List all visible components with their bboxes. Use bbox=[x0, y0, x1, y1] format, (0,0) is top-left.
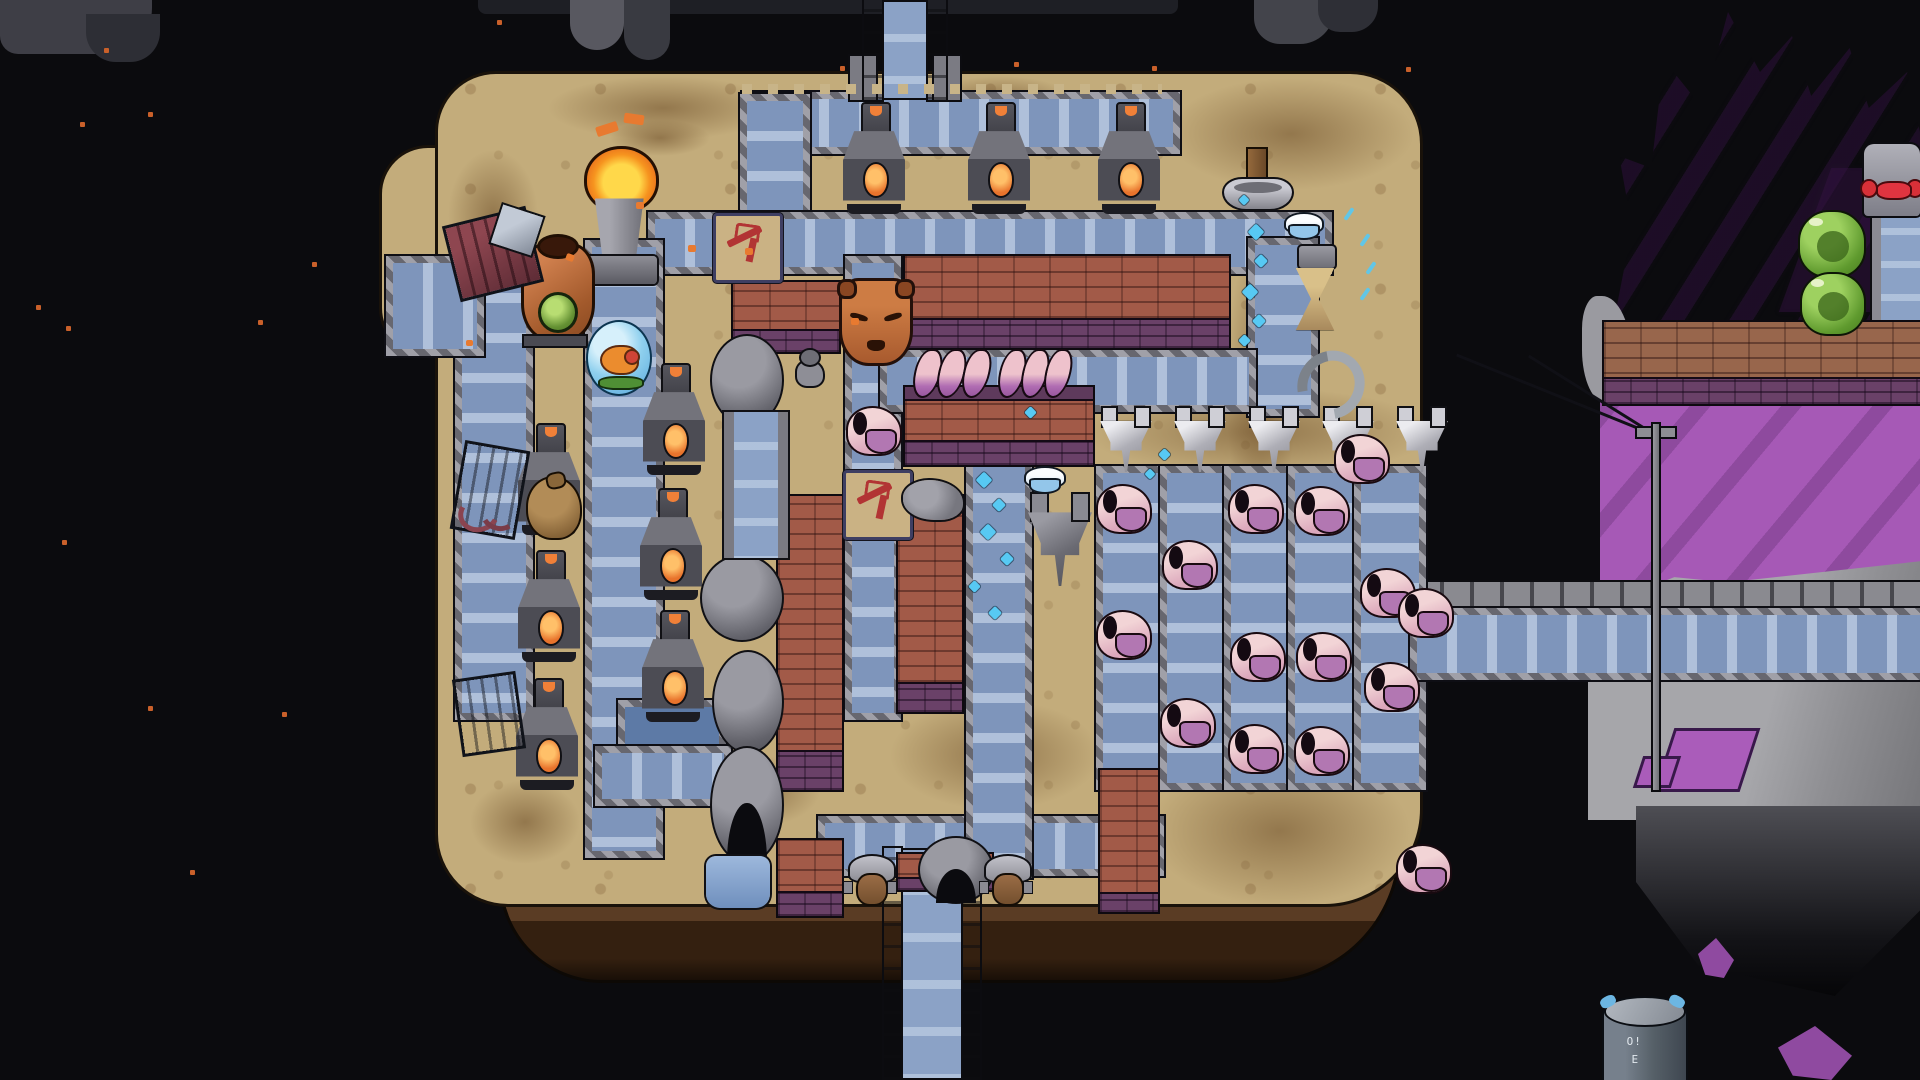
stone-furnace-part bbox=[1102, 204, 1157, 214]
stone-furnace[interactable] bbox=[843, 102, 905, 214]
brick-wall[interactable] bbox=[905, 387, 1093, 465]
ice-bowl-item[interactable] bbox=[1284, 212, 1320, 240]
shrimp-item[interactable] bbox=[1364, 662, 1416, 708]
shrimp-item-part bbox=[1415, 867, 1447, 892]
shrimp-item-part bbox=[1247, 507, 1279, 532]
shrimp-item-part bbox=[1313, 509, 1345, 534]
space-dust bbox=[840, 66, 845, 71]
water-bubble-item-part bbox=[598, 376, 644, 390]
hopper-machine[interactable] bbox=[1174, 408, 1226, 472]
space-dust bbox=[258, 320, 263, 325]
perched-bug-part bbox=[799, 348, 821, 367]
brick-wall[interactable] bbox=[1604, 322, 1920, 404]
signal-machine-part bbox=[1876, 181, 1911, 199]
hopper-machine-part bbox=[1100, 421, 1152, 472]
hourglass-machine-part bbox=[1297, 244, 1336, 270]
statue-head-part bbox=[884, 311, 903, 321]
stone-furnace[interactable] bbox=[518, 550, 580, 662]
clay-vessel-machine-part bbox=[538, 292, 578, 333]
space-dust bbox=[148, 706, 153, 711]
ember-spark bbox=[851, 318, 859, 325]
spilled-shards bbox=[458, 492, 520, 526]
marker-sign-part bbox=[864, 479, 891, 499]
shrimp-item[interactable] bbox=[1228, 484, 1280, 530]
dark-hopper-machine[interactable] bbox=[1028, 494, 1092, 586]
hopper-machine-part bbox=[1248, 421, 1300, 472]
hopper-machine[interactable] bbox=[1100, 408, 1152, 472]
space-dust bbox=[1406, 67, 1411, 72]
collector-dish-part bbox=[1222, 177, 1294, 211]
asteroid-rock bbox=[570, 0, 624, 50]
green-slime-part bbox=[1817, 231, 1849, 262]
shrimp-item[interactable] bbox=[1294, 726, 1346, 772]
stone-furnace-part bbox=[646, 712, 701, 722]
stone-furnace-part bbox=[647, 465, 702, 475]
shrimp-item[interactable] bbox=[1160, 698, 1212, 744]
rock-underside bbox=[1636, 806, 1920, 996]
ice-bowl-item[interactable] bbox=[1024, 466, 1062, 494]
worker-bug[interactable] bbox=[981, 854, 1031, 908]
stone-furnace-part bbox=[988, 162, 1014, 197]
water-bubble-item-part bbox=[600, 345, 639, 375]
stone-furnace-part bbox=[536, 738, 562, 773]
stone-furnace-part bbox=[972, 204, 1027, 214]
clay-vessel-machine-part bbox=[524, 336, 586, 346]
shrimp-item[interactable] bbox=[1396, 844, 1448, 890]
statue-head-part bbox=[867, 340, 885, 351]
dark-hopper-machine-part bbox=[1028, 512, 1092, 586]
perched-bug[interactable] bbox=[792, 348, 824, 386]
stone-dome[interactable] bbox=[712, 650, 784, 754]
shrimp-item[interactable] bbox=[1228, 724, 1280, 770]
ember-spark bbox=[636, 202, 644, 209]
space-dust bbox=[497, 20, 502, 25]
asteroid-rock bbox=[624, 0, 670, 60]
conveyor-belt[interactable] bbox=[966, 456, 1032, 878]
ember-spark bbox=[466, 340, 473, 346]
shrimp-item[interactable] bbox=[1162, 540, 1214, 586]
shrimp-item-part bbox=[1353, 457, 1385, 482]
ember-spark bbox=[745, 248, 753, 255]
dome-kiln[interactable] bbox=[710, 746, 784, 864]
shrimp-item[interactable] bbox=[846, 406, 898, 452]
space-dust bbox=[1152, 66, 1157, 71]
shrimp-item[interactable] bbox=[1096, 484, 1148, 530]
stone-furnace-part bbox=[863, 162, 889, 197]
canister-marking: O! bbox=[1627, 1035, 1642, 1048]
space-dust bbox=[66, 326, 71, 331]
hourglass-machine[interactable] bbox=[1294, 244, 1336, 336]
green-slime-part bbox=[1809, 218, 1823, 226]
shrimp-item-part bbox=[1313, 749, 1345, 774]
stone-furnace[interactable] bbox=[643, 363, 705, 475]
stone-furnace[interactable] bbox=[642, 610, 704, 722]
soil-patch bbox=[1168, 78, 1414, 190]
hopper-machine[interactable] bbox=[1396, 408, 1448, 472]
stone-furnace[interactable] bbox=[968, 102, 1030, 214]
conveyor-belt[interactable] bbox=[845, 530, 901, 720]
shrimp-item[interactable] bbox=[1096, 610, 1148, 656]
small-crystal bbox=[1778, 1026, 1852, 1080]
hopper-machine-part bbox=[1174, 421, 1226, 472]
space-dust bbox=[1014, 62, 1019, 67]
brick-wall[interactable] bbox=[905, 256, 1229, 348]
shrimp-item-part bbox=[1115, 507, 1147, 532]
shrimp-bunch[interactable] bbox=[913, 348, 987, 396]
ice-bowl-item-part bbox=[1288, 224, 1319, 240]
green-slime[interactable] bbox=[1800, 272, 1866, 336]
flame-torch[interactable] bbox=[583, 146, 657, 284]
vertical-lift[interactable] bbox=[1872, 202, 1920, 332]
rail-posts bbox=[742, 84, 1162, 94]
conveyor-belt[interactable] bbox=[1410, 608, 1920, 680]
glass-pipe[interactable] bbox=[724, 412, 788, 558]
water-bubble-item[interactable] bbox=[586, 320, 652, 396]
canister-marking: E bbox=[1632, 1053, 1639, 1066]
shrimp-item[interactable] bbox=[1230, 632, 1282, 678]
asteroid-rock bbox=[86, 14, 160, 62]
worker-bug-part bbox=[856, 873, 888, 906]
stone-furnace-part bbox=[644, 590, 699, 600]
stone-furnace-part bbox=[847, 204, 902, 214]
ember-spark bbox=[688, 245, 696, 252]
shrimp-item[interactable] bbox=[1334, 434, 1386, 480]
soil-patch bbox=[470, 780, 580, 864]
space-dust bbox=[190, 870, 195, 875]
stone-furnace-part bbox=[662, 670, 688, 705]
worker-bug-part bbox=[992, 873, 1024, 906]
space-dust bbox=[104, 48, 109, 53]
stone-furnace-part bbox=[663, 423, 689, 458]
shrimp-item-part bbox=[1247, 747, 1279, 772]
shrimp-item[interactable] bbox=[1296, 632, 1348, 678]
stone-furnace[interactable] bbox=[516, 678, 578, 790]
green-slime[interactable] bbox=[1798, 210, 1866, 278]
space-dust bbox=[312, 262, 317, 267]
shrimp-item-part bbox=[1383, 685, 1415, 710]
space-dust bbox=[148, 112, 153, 117]
storage-canister[interactable]: O!E bbox=[1602, 996, 1684, 1080]
stone-furnace[interactable] bbox=[640, 488, 702, 600]
supply-sack[interactable] bbox=[526, 476, 582, 540]
space-dust bbox=[36, 305, 41, 310]
collector-dish[interactable] bbox=[1222, 146, 1290, 214]
shrimp-item-part bbox=[1249, 655, 1281, 680]
hopper-machine[interactable] bbox=[1248, 408, 1300, 472]
marker-sign[interactable] bbox=[843, 470, 913, 540]
shrimp-item[interactable] bbox=[1294, 486, 1346, 532]
hourglass-machine-part bbox=[1296, 268, 1335, 331]
green-slime-part bbox=[1811, 279, 1825, 287]
asteroid-rock bbox=[1318, 0, 1378, 32]
green-slime-part bbox=[1818, 292, 1849, 321]
game-viewport: O!E bbox=[0, 0, 1920, 1080]
bridge-mast-part bbox=[1653, 424, 1659, 790]
stone-furnace-part bbox=[538, 610, 564, 645]
stone-furnace[interactable] bbox=[1098, 102, 1160, 214]
stone-furnace-part bbox=[520, 780, 575, 790]
shrimp-item-part bbox=[1181, 563, 1213, 588]
brick-wall[interactable] bbox=[778, 840, 842, 916]
shrimp-item-part bbox=[1315, 655, 1347, 680]
marker-sign-part bbox=[734, 222, 761, 242]
shrimp-item-part bbox=[1115, 633, 1147, 658]
ice-bowl-item-part bbox=[1029, 478, 1062, 494]
stone-furnace-part bbox=[1118, 162, 1144, 197]
space-dust bbox=[282, 712, 287, 717]
shrimp-item-part bbox=[1179, 721, 1211, 746]
space-dust bbox=[80, 122, 85, 127]
hopper-machine-part bbox=[1396, 421, 1448, 472]
brick-wall[interactable] bbox=[1100, 770, 1158, 912]
space-dust bbox=[62, 540, 67, 545]
signal-machine[interactable] bbox=[1864, 144, 1920, 216]
shrimp-item-part bbox=[865, 429, 897, 454]
shrimp-item[interactable] bbox=[1398, 588, 1450, 634]
shrimp-item-part bbox=[1417, 611, 1449, 636]
stone-furnace-part bbox=[522, 652, 577, 662]
signal-machine-part bbox=[1860, 179, 1879, 199]
worker-bug[interactable] bbox=[845, 854, 895, 908]
shrimp-bunch[interactable] bbox=[998, 348, 1068, 396]
stone-furnace-part bbox=[660, 548, 686, 583]
supply-crate[interactable] bbox=[455, 674, 522, 753]
stone-dome[interactable] bbox=[700, 554, 784, 642]
bridge-mast[interactable] bbox=[1648, 424, 1664, 790]
water-pool bbox=[706, 856, 770, 908]
